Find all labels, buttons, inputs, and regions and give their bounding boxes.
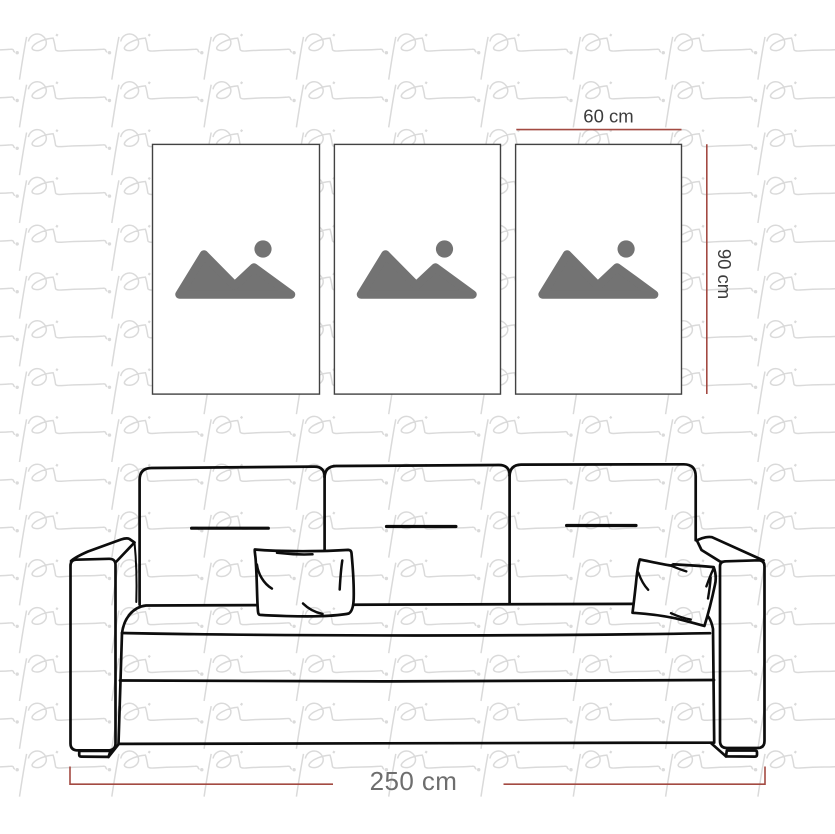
svg-text:250 cm: 250 cm <box>370 766 458 796</box>
svg-text:60 cm: 60 cm <box>583 106 633 127</box>
svg-text:90 cm: 90 cm <box>714 249 735 299</box>
